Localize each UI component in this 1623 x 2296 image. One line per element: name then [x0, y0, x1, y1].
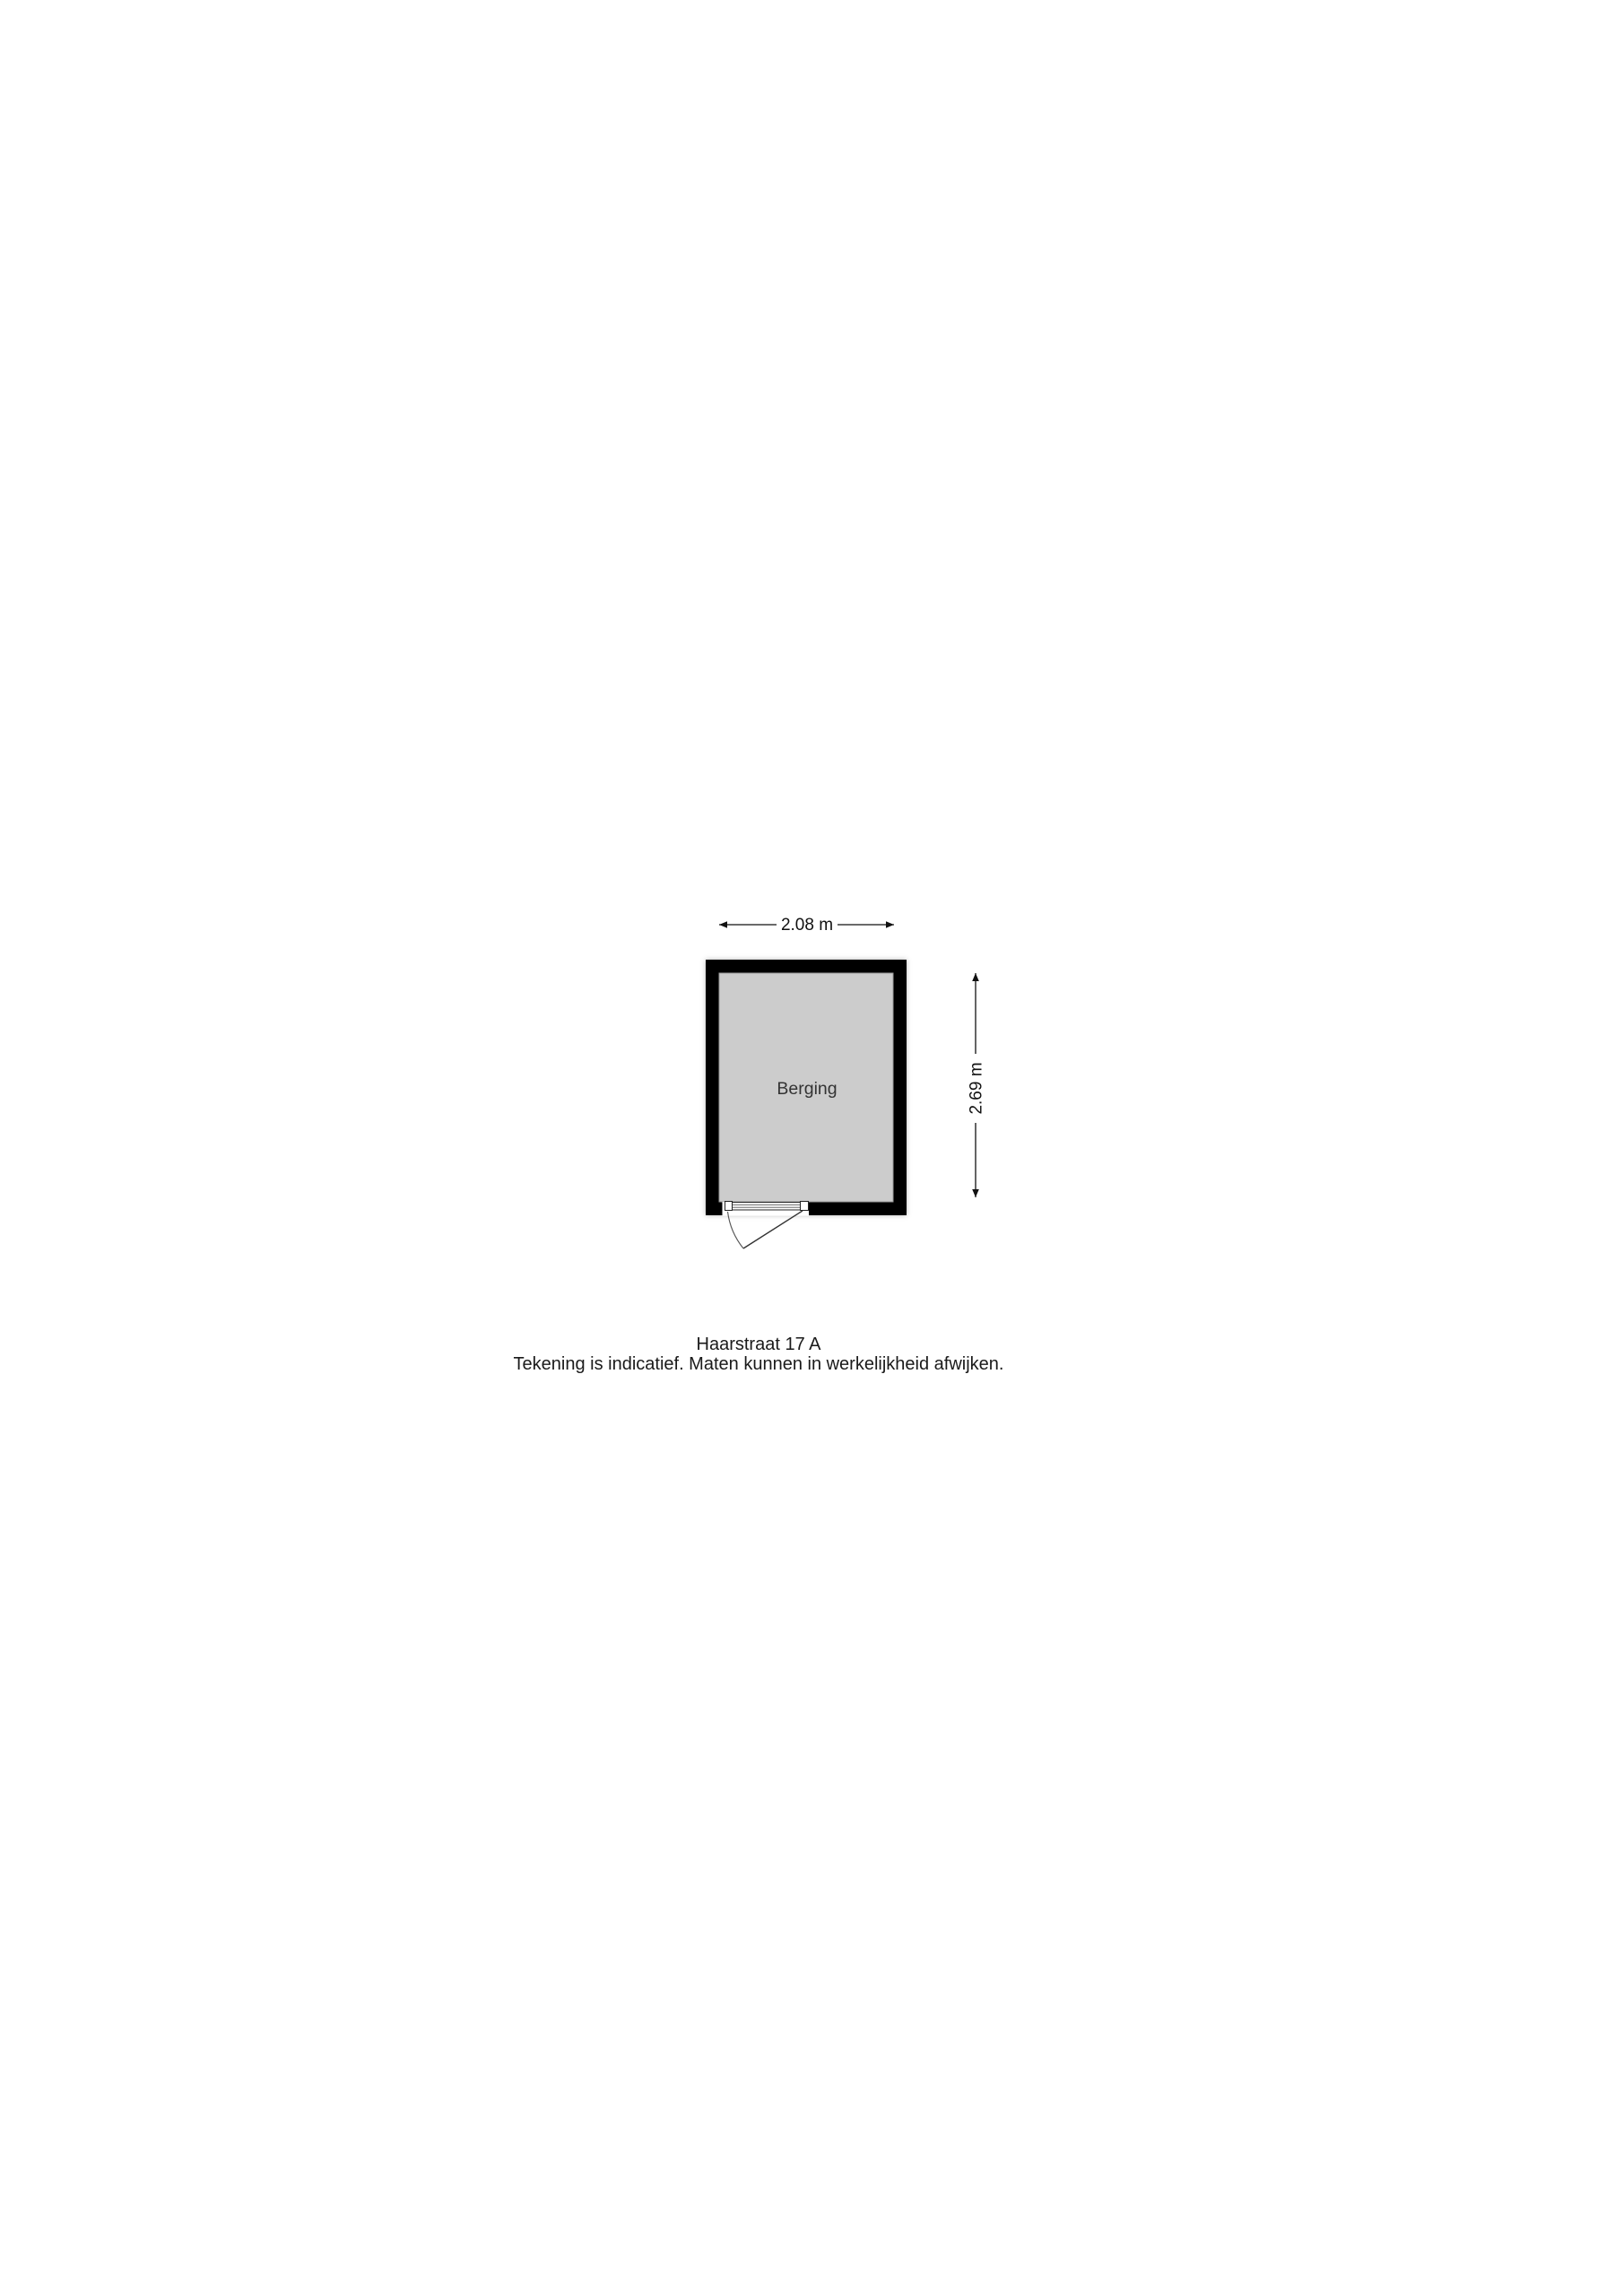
arrow-up-icon [972, 973, 979, 981]
width-dimension-label: 2.08 m [781, 916, 833, 935]
height-dimension-label: 2.69 m [968, 1062, 986, 1114]
floorplan-drawing: 2.08 m Berging 2.69 m [699, 904, 995, 1263]
disclaimer-line: Tekening is indicatief. Maten kunnen in … [355, 1354, 1162, 1374]
page-canvas: 2.08 m Berging 2.69 m [0, 0, 1623, 2296]
room-label: Berging [777, 1079, 837, 1099]
arrow-left-icon [719, 921, 727, 928]
door-jamb-right [801, 1202, 809, 1211]
caption: Haarstraat 17 A Tekening is indicatief. … [355, 1335, 1162, 1374]
door-swing-arc [728, 1212, 744, 1248]
arrow-right-icon [886, 921, 894, 928]
width-dimension: 2.08 m [719, 916, 894, 935]
door-leaf [743, 1211, 803, 1248]
height-dimension: 2.69 m [968, 973, 986, 1197]
door-jamb-left [725, 1202, 733, 1211]
threshold-rect [733, 1203, 801, 1211]
address-line: Haarstraat 17 A [355, 1335, 1162, 1354]
door-threshold [733, 1203, 801, 1211]
arrow-down-icon [972, 1189, 979, 1197]
